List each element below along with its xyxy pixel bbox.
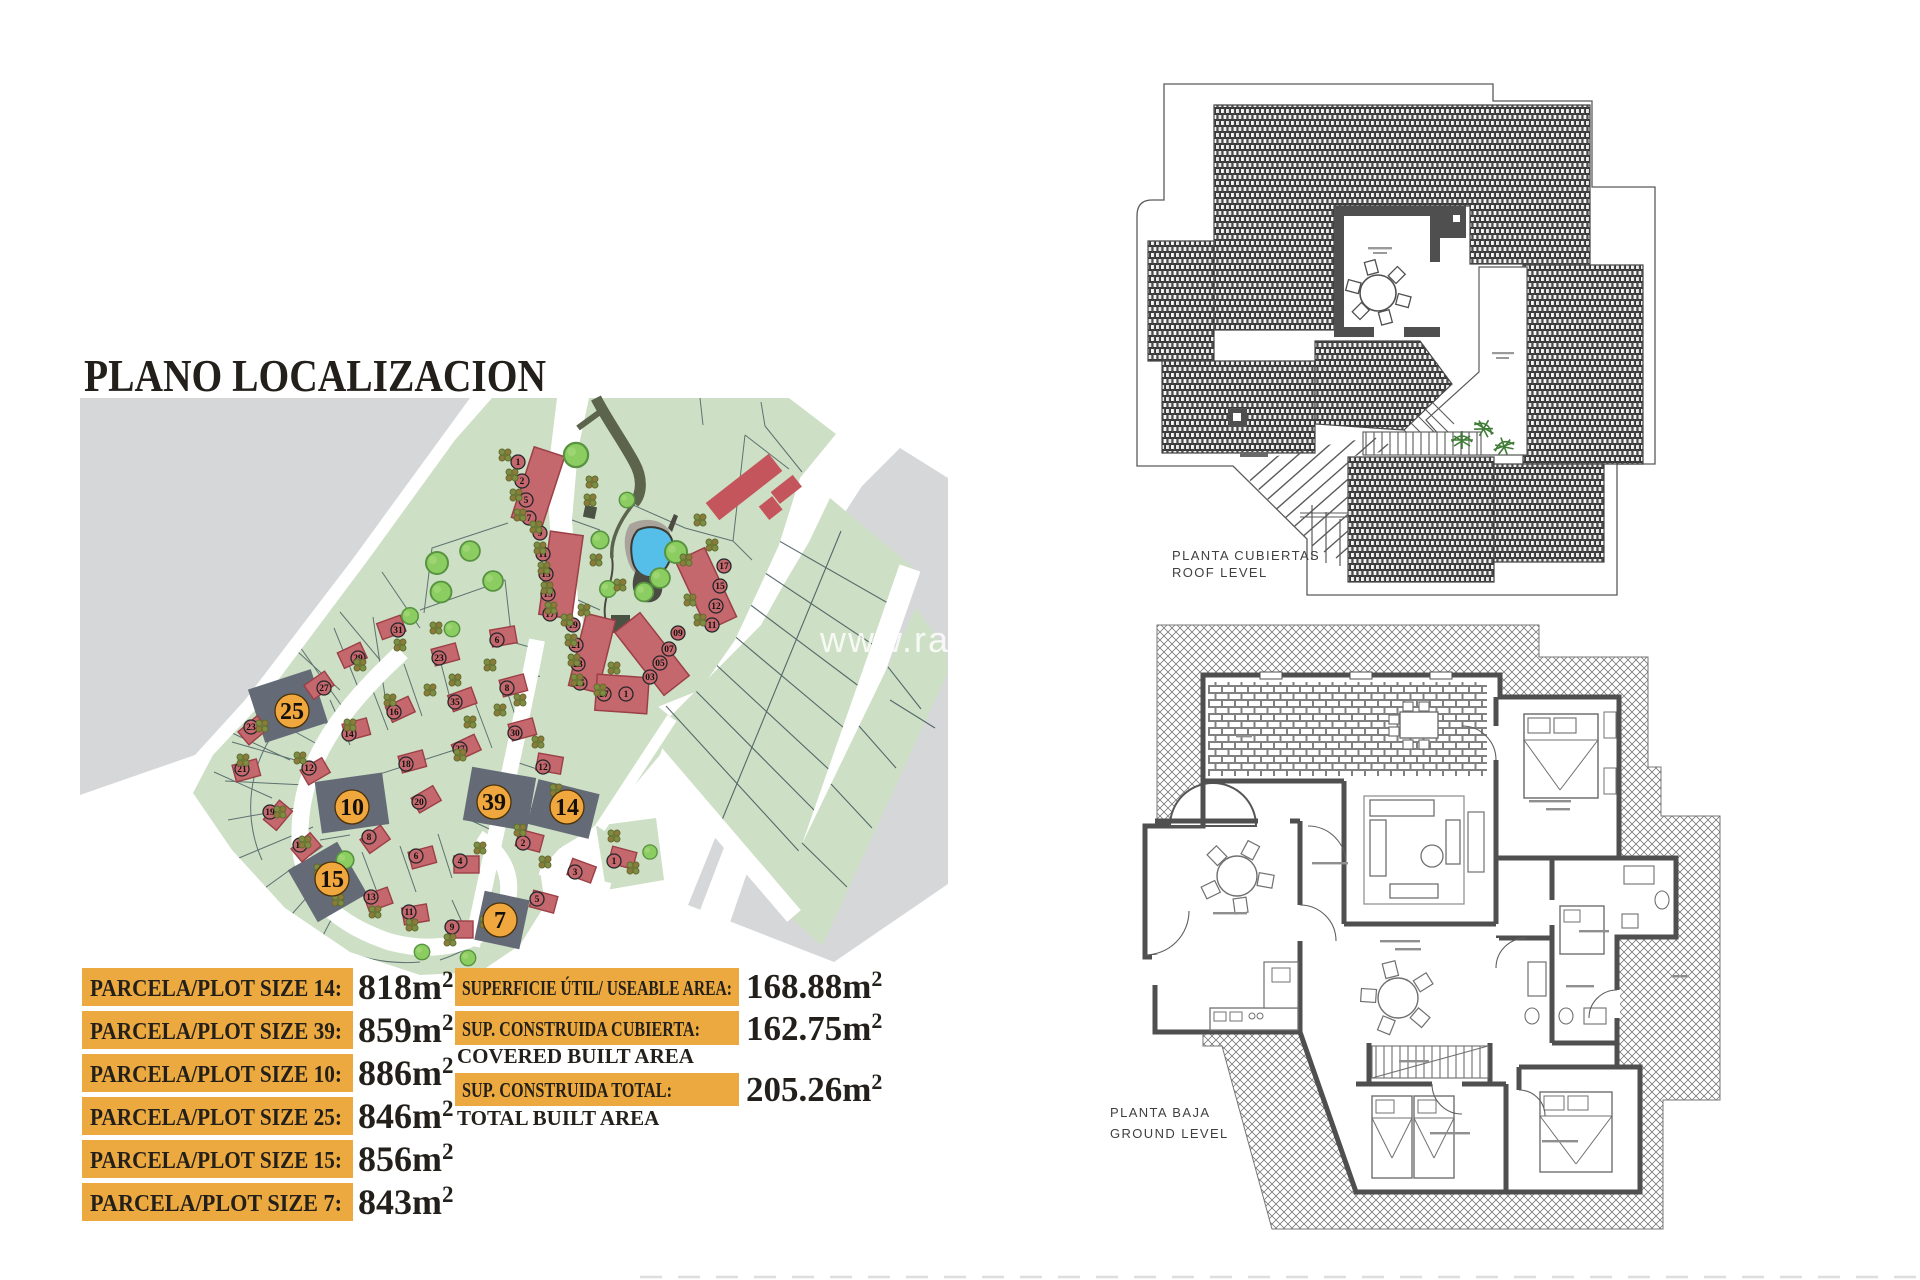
svg-text:6: 6 — [495, 636, 500, 646]
svg-text:03: 03 — [645, 673, 655, 683]
svg-text:846m2: 846m2 — [358, 1096, 454, 1136]
svg-text:14: 14 — [555, 795, 579, 821]
svg-text:TOTAL BUILT AREA: TOTAL BUILT AREA — [457, 1106, 660, 1130]
svg-text:12: 12 — [304, 764, 314, 774]
svg-text:35: 35 — [450, 698, 460, 708]
svg-text:3: 3 — [573, 868, 578, 878]
svg-text:07: 07 — [664, 645, 674, 655]
svg-text:21: 21 — [237, 765, 247, 775]
svg-text:SUP. CONSTRUIDA CUBIERTA:: SUP. CONSTRUIDA CUBIERTA: — [462, 1017, 700, 1041]
svg-text:PARCELA/PLOT SIZE 15:: PARCELA/PLOT SIZE 15: — [90, 1148, 342, 1174]
svg-text:4: 4 — [458, 857, 463, 867]
svg-text:14: 14 — [344, 730, 354, 740]
svg-text:8: 8 — [505, 684, 510, 694]
svg-text:843m2: 843m2 — [358, 1182, 454, 1222]
svg-text:SUP. CONSTRUIDA TOTAL:: SUP. CONSTRUIDA TOTAL: — [462, 1078, 672, 1102]
svg-text:PARCELA/PLOT SIZE 39:: PARCELA/PLOT SIZE 39: — [90, 1019, 342, 1045]
svg-text:205.26m2: 205.26m2 — [746, 1069, 882, 1109]
svg-text:19: 19 — [265, 808, 275, 818]
svg-text:7: 7 — [494, 908, 506, 934]
svg-text:PARCELA/PLOT SIZE 7:: PARCELA/PLOT SIZE 7: — [90, 1191, 342, 1217]
svg-text:PARCELA/PLOT SIZE 10:: PARCELA/PLOT SIZE 10: — [90, 1062, 342, 1088]
svg-text:886m2: 886m2 — [358, 1053, 454, 1093]
svg-text:30: 30 — [510, 729, 520, 739]
svg-text:ROOF LEVEL: ROOF LEVEL — [1172, 565, 1268, 580]
svg-text:25: 25 — [280, 699, 304, 725]
svg-text:15: 15 — [715, 582, 725, 592]
svg-text:12: 12 — [711, 602, 721, 612]
svg-text:15: 15 — [320, 867, 344, 893]
svg-text:09: 09 — [673, 629, 683, 639]
svg-text:05: 05 — [655, 659, 665, 669]
svg-text:PARCELA/PLOT SIZE 14:: PARCELA/PLOT SIZE 14: — [90, 976, 342, 1002]
svg-text:27: 27 — [319, 684, 329, 694]
svg-text:13: 13 — [366, 893, 376, 903]
svg-text:2: 2 — [521, 839, 526, 849]
svg-text:818m2: 818m2 — [358, 967, 454, 1007]
svg-text:859m2: 859m2 — [358, 1010, 454, 1050]
svg-text:23: 23 — [246, 723, 256, 733]
svg-text:PARCELA/PLOT SIZE 25:: PARCELA/PLOT SIZE 25: — [90, 1105, 342, 1131]
svg-text:17: 17 — [719, 562, 729, 572]
svg-text:12: 12 — [538, 763, 548, 773]
svg-text:1: 1 — [624, 690, 629, 700]
svg-text:1: 1 — [612, 857, 617, 867]
svg-text:10: 10 — [340, 795, 364, 821]
svg-text:11: 11 — [708, 621, 717, 631]
svg-text:5: 5 — [535, 895, 540, 905]
svg-text:5: 5 — [524, 496, 529, 506]
svg-text:16: 16 — [389, 708, 399, 718]
svg-text:2: 2 — [520, 477, 525, 487]
svg-text:1: 1 — [516, 458, 521, 468]
svg-text:856m2: 856m2 — [358, 1139, 454, 1179]
svg-text:39: 39 — [482, 790, 506, 816]
svg-text:9: 9 — [450, 923, 455, 933]
svg-text:COVERED BUILT AREA: COVERED BUILT AREA — [457, 1044, 695, 1068]
svg-text:www.rayos: www.rayos — [819, 619, 1012, 660]
svg-text:168.88m2: 168.88m2 — [746, 966, 882, 1006]
svg-text:GROUND LEVEL: GROUND LEVEL — [1110, 1126, 1229, 1141]
svg-text:8: 8 — [367, 833, 372, 843]
svg-text:PLANO LOCALIZACION: PLANO LOCALIZACION — [84, 350, 546, 401]
svg-text:31: 31 — [393, 626, 403, 636]
svg-text:SUPERFICIE ÚTIL/ USEABLE AREA:: SUPERFICIE ÚTIL/ USEABLE AREA: — [462, 976, 732, 1000]
svg-text:11: 11 — [405, 908, 414, 918]
svg-text:23: 23 — [434, 654, 444, 664]
svg-text:20: 20 — [414, 798, 424, 808]
svg-text:PLANTA CUBIERTAS: PLANTA CUBIERTAS — [1172, 548, 1320, 563]
svg-text:PLANTA BAJA: PLANTA BAJA — [1110, 1105, 1210, 1120]
svg-text:18: 18 — [401, 760, 411, 770]
svg-text:162.75m2: 162.75m2 — [746, 1008, 882, 1048]
svg-text:6: 6 — [414, 852, 419, 862]
